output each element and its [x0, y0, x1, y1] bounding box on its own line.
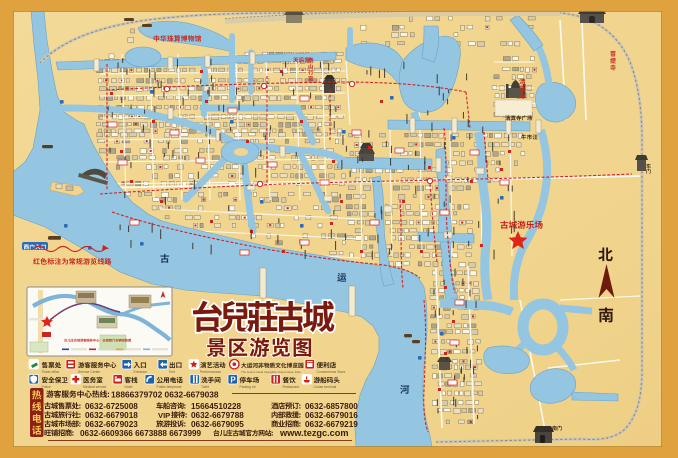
- svg-text:Cruise terminal: Cruise terminal: [314, 385, 337, 389]
- svg-text:0632-6679016: 0632-6679016: [305, 411, 358, 420]
- svg-text:The Grand Canal Intangible Cul: The Grand Canal Intangible Culture Expo …: [241, 370, 301, 374]
- svg-text:18866379702 0632-6679038: 18866379702 0632-6679038: [111, 389, 219, 399]
- svg-text:www.tezgc.com: www.tezgc.com: [279, 428, 349, 438]
- svg-text:0632-6725008: 0632-6725008: [85, 402, 138, 411]
- svg-text:0632-6679023: 0632-6679023: [85, 420, 138, 429]
- svg-text:P: P: [230, 376, 236, 385]
- svg-text:Convenience Store: Convenience Store: [317, 370, 346, 374]
- svg-text:Medical service: Medical service: [83, 385, 106, 389]
- svg-text:0632-6679018: 0632-6679018: [85, 411, 138, 420]
- svg-text:Toilet: Toilet: [201, 385, 209, 389]
- svg-text:Hotel: Hotel: [125, 385, 133, 389]
- svg-text:Restaurant: Restaurant: [283, 385, 300, 389]
- svg-text:Parking lot: Parking lot: [240, 385, 256, 389]
- svg-text:Performances: Performances: [200, 370, 221, 374]
- svg-text:Ticket office: Ticket office: [42, 370, 60, 374]
- svg-text:Public telephone: Public telephone: [157, 385, 182, 389]
- svg-text:0632-6679095: 0632-6679095: [191, 420, 244, 429]
- svg-text:0632-6857800: 0632-6857800: [305, 402, 358, 411]
- svg-text:Entrance: Entrance: [134, 370, 148, 374]
- svg-text:0632-6679788: 0632-6679788: [191, 411, 244, 420]
- svg-text:0632-6609366 6673888 6673999: 0632-6609366 6673888 6673999: [80, 429, 202, 438]
- svg-text:Police: Police: [42, 385, 51, 389]
- svg-text:Service Center: Service Center: [78, 370, 101, 374]
- svg-text:15664510228: 15664510228: [191, 402, 242, 411]
- svg-text:Exit: Exit: [169, 370, 175, 374]
- svg-text:VIP: VIP: [158, 411, 170, 420]
